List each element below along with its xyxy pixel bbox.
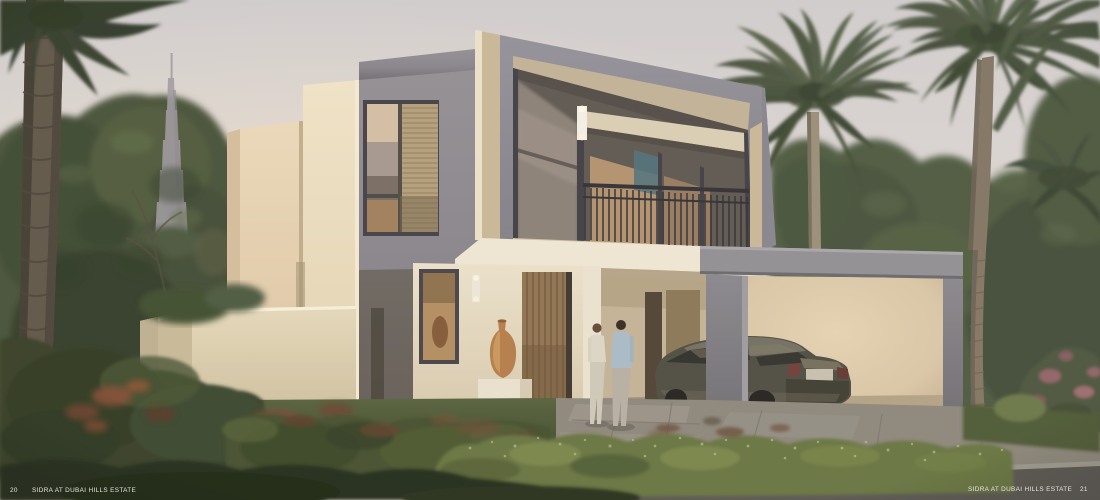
svg-text:21: 21	[1080, 486, 1088, 493]
svg-text:20: 20	[10, 487, 18, 494]
svg-text:SIDRA AT DUBAI HILLS ESTATE: SIDRA AT DUBAI HILLS ESTATE	[968, 486, 1072, 493]
svg-text:SIDRA AT DUBAI HILLS ESTATE: SIDRA AT DUBAI HILLS ESTATE	[32, 487, 136, 494]
